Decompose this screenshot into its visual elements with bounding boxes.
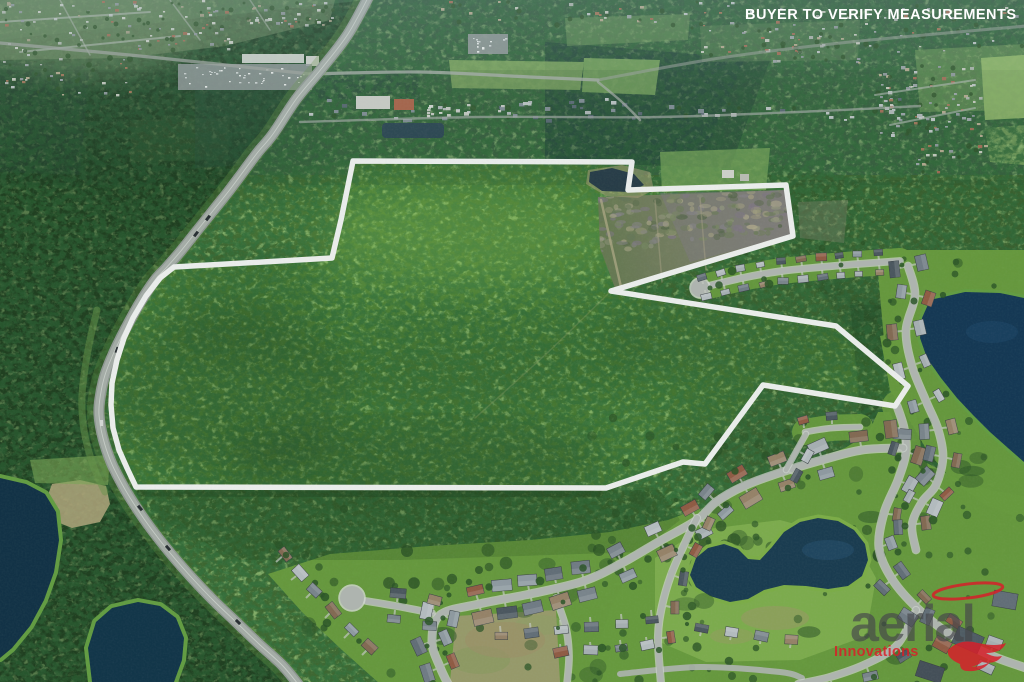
svg-text:BUYER TO VERIFY MEASUREMENTS: BUYER TO VERIFY MEASUREMENTS: [745, 7, 1017, 23]
svg-text:Innovations: Innovations: [834, 644, 919, 660]
